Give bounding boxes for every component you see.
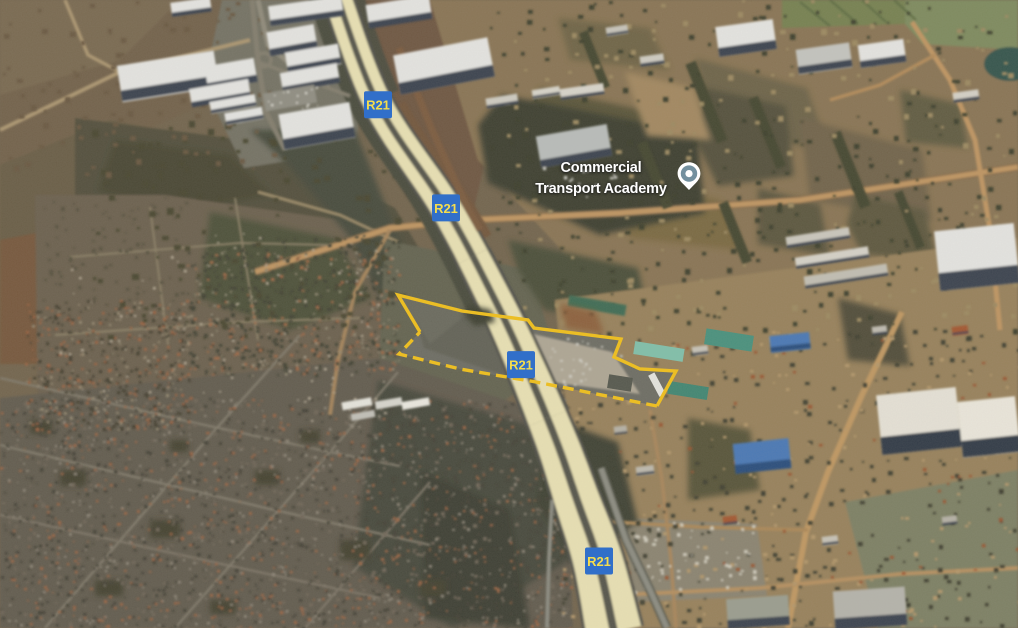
svg-text:R21: R21 — [434, 201, 458, 216]
svg-text:R21: R21 — [587, 554, 611, 569]
svg-text:R21: R21 — [509, 358, 533, 373]
svg-text:R21: R21 — [366, 98, 390, 113]
